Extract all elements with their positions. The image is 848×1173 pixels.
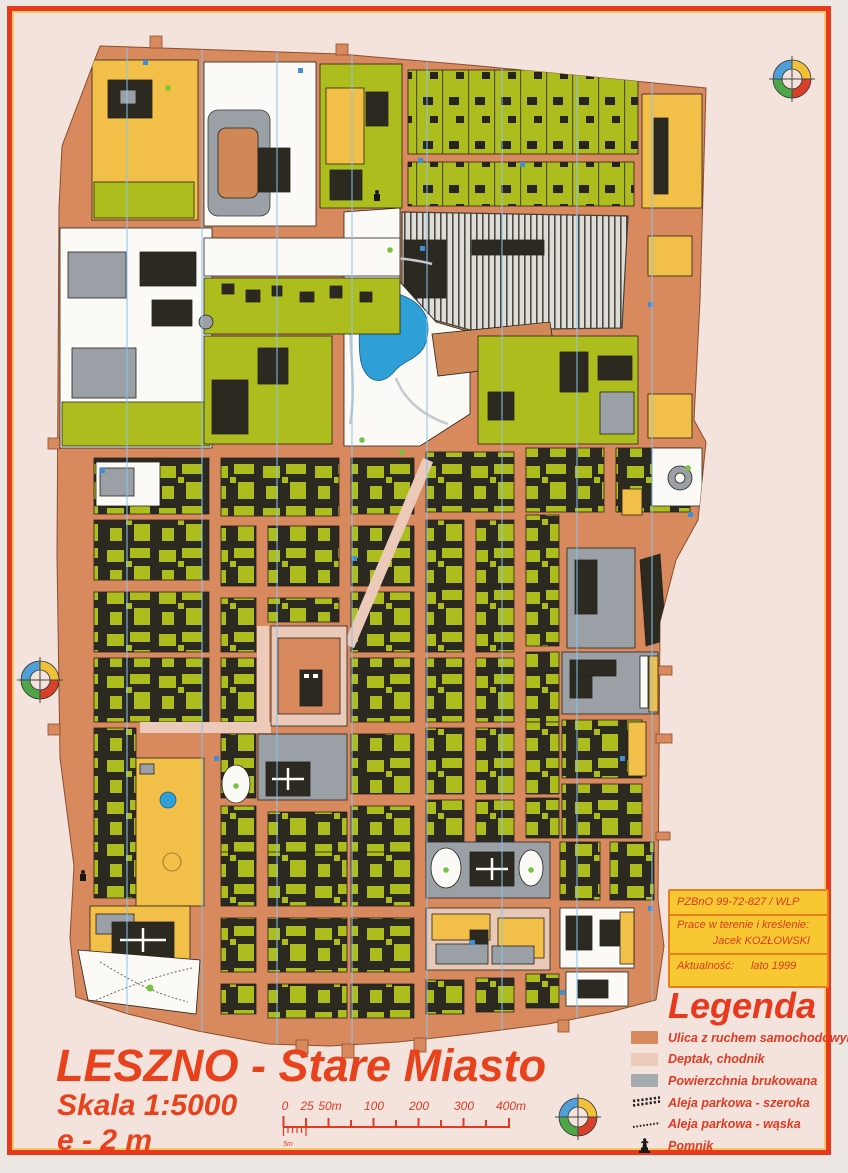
block-park-northwest bbox=[92, 60, 198, 220]
small-roundabout bbox=[199, 315, 213, 329]
block-north-middle bbox=[320, 64, 402, 208]
fieldwork-credit: Prace w terenie i kreślenie: Jacek KOZŁO… bbox=[670, 916, 827, 956]
legend-item-alley-narrow: Aleja parkowa - wąska bbox=[631, 1113, 837, 1135]
legend-item-paved: Powierzchnia brukowana bbox=[631, 1070, 837, 1092]
legend-item-label: Aleja parkowa - wąska bbox=[668, 1117, 801, 1131]
scale-sub-label: 5m bbox=[283, 1141, 293, 1148]
map-title: LESZNO - Stare Miasto bbox=[56, 1040, 546, 1092]
park-southwest bbox=[78, 950, 200, 1014]
sidewalk-swatch-icon bbox=[631, 1053, 661, 1066]
legend-item-label: Aleja parkowa - szeroka bbox=[668, 1096, 810, 1110]
scale-tick-label: 50m bbox=[318, 1099, 341, 1113]
currency-value: lato 1999 bbox=[751, 960, 796, 972]
legend-item-label: Pomnik bbox=[668, 1139, 713, 1153]
scale-tick-label: 400m bbox=[496, 1099, 526, 1113]
legend-item-label: Powierzchnia brukowana bbox=[668, 1074, 817, 1088]
legend: Ulica z ruchem samochodowym Deptak, chod… bbox=[631, 1027, 837, 1157]
scale-tick-label: 0 bbox=[282, 1099, 289, 1113]
paved-swatch-icon bbox=[631, 1074, 661, 1087]
market-square bbox=[271, 626, 347, 726]
contour-interval-label: e - 2 m bbox=[57, 1124, 152, 1158]
block-railway-yard bbox=[402, 212, 628, 330]
alley-wide-icon bbox=[631, 1096, 661, 1110]
credits-box: PZBnO 99-72-827 / WLP Prace w terenie i … bbox=[668, 889, 829, 988]
block-school-west bbox=[60, 228, 212, 448]
registration-mark-left bbox=[17, 657, 63, 703]
alley-narrow-icon bbox=[631, 1118, 661, 1130]
plaza-fountain bbox=[136, 758, 204, 906]
scale-bar: 0 25 50m 100 200 300 400m 5m bbox=[268, 1094, 538, 1152]
legend-title: Legenda bbox=[668, 985, 816, 1027]
town-hall bbox=[300, 670, 322, 706]
scale-sub-ruler bbox=[284, 1127, 307, 1136]
legend-item-alley-wide: Aleja parkowa - szeroka bbox=[631, 1092, 837, 1114]
fieldwork-author: Jacek KOZŁOWSKI bbox=[677, 935, 820, 949]
legend-item-label: Ulica z ruchem samochodowym bbox=[668, 1031, 848, 1045]
fieldwork-label: Prace w terenie i kreślenie: bbox=[677, 919, 820, 933]
street-swatch-icon bbox=[631, 1031, 661, 1044]
monument-icon bbox=[631, 1138, 661, 1154]
legend-item-label: Deptak, chodnik bbox=[668, 1052, 765, 1066]
scale-tick-label: 200 bbox=[408, 1099, 429, 1113]
scale-tick-label: 25 bbox=[299, 1099, 314, 1113]
scanned-map-page: LESZNO - Stare Miasto Skala 1:5000 e - 2… bbox=[0, 0, 848, 1173]
scale-tick-label: 100 bbox=[364, 1099, 384, 1113]
currency-row: Aktualność: lato 1999 bbox=[670, 955, 827, 977]
legend-item-sidewalk: Deptak, chodnik bbox=[631, 1049, 837, 1071]
scale-tick-label: 300 bbox=[454, 1099, 474, 1113]
map-scale-label: Skala 1:5000 bbox=[57, 1089, 237, 1123]
legend-item-street: Ulica z ruchem samochodowym bbox=[631, 1027, 837, 1049]
currency-label: Aktualność: bbox=[677, 960, 734, 972]
legend-item-monument: Pomnik bbox=[631, 1135, 837, 1157]
block-stadium bbox=[204, 62, 316, 226]
registration-mark-top-right bbox=[769, 56, 815, 102]
fountain bbox=[160, 792, 176, 808]
registration-number: PZBnO 99-72-827 / WLP bbox=[670, 891, 827, 916]
scale-bar-ticks bbox=[283, 1116, 510, 1127]
registration-mark-bottom bbox=[555, 1094, 601, 1140]
